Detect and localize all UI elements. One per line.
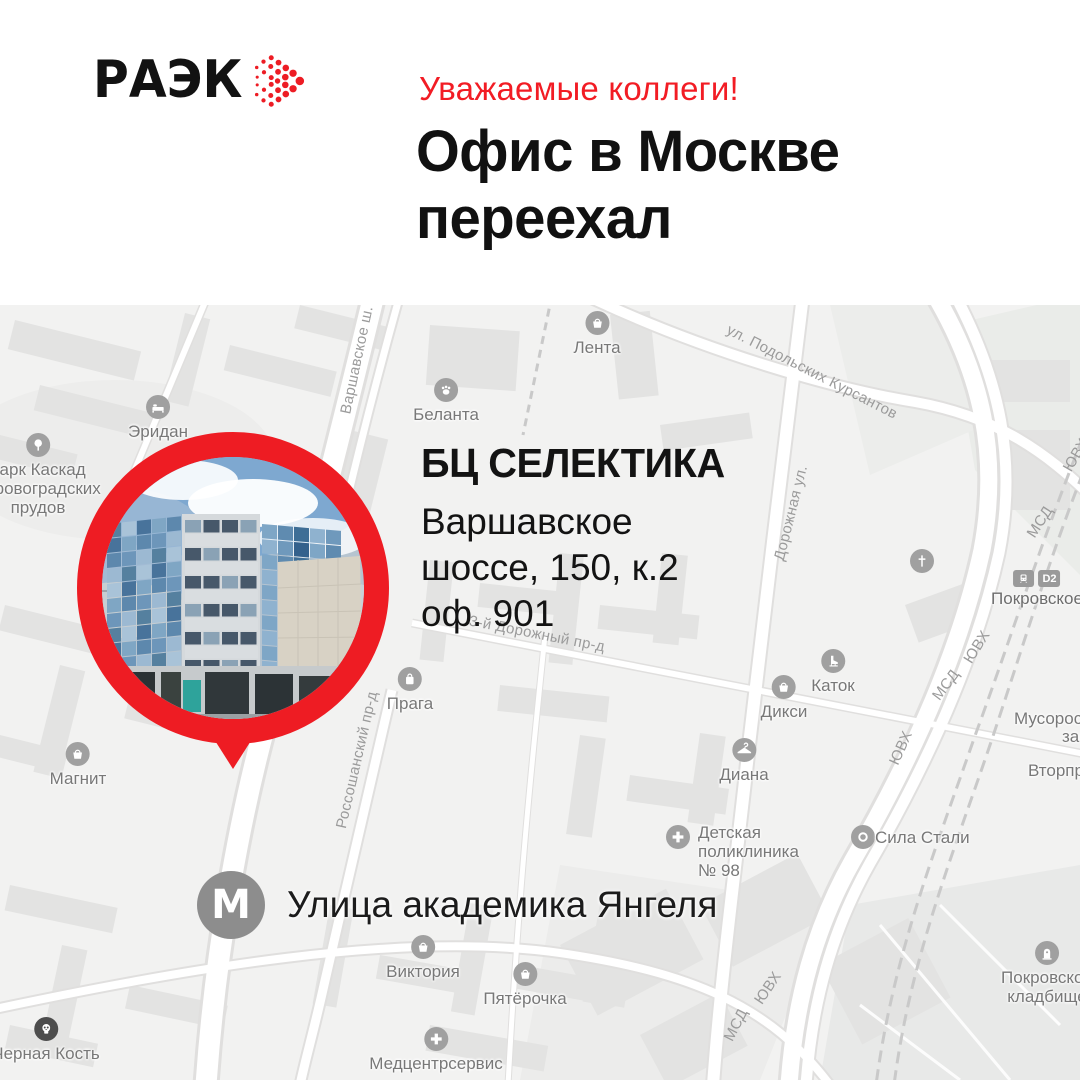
raec-logo: РАЭК bbox=[93, 48, 310, 112]
basket-icon bbox=[513, 962, 537, 986]
map-poi-label: Беланта bbox=[413, 405, 479, 424]
tomb-icon bbox=[1035, 941, 1059, 965]
basket-icon bbox=[772, 675, 796, 699]
map-poi-diksi: Дикси bbox=[761, 675, 808, 721]
page-title: Офис в Москве переехал bbox=[416, 118, 839, 252]
cross-icon bbox=[910, 549, 934, 573]
map-poi-label: Мусоросжигательный bbox=[1014, 709, 1080, 728]
metro-station-name: Улица академика Янгеля bbox=[287, 884, 717, 926]
map-poi-medcentrservis: Медцентрсервис bbox=[369, 1027, 502, 1073]
map-poi-label: Дикси bbox=[761, 702, 808, 721]
map-poi-label: Медцентрсервис bbox=[369, 1054, 502, 1073]
map-poi-katok: Каток bbox=[811, 649, 854, 695]
station-pokrovskoe: D2 Покровское bbox=[991, 570, 1080, 609]
map-poi-label: завод bbox=[1062, 727, 1080, 746]
address-line-3: оф. 901 bbox=[421, 591, 734, 637]
map-poi-musoro-line2: завод bbox=[1062, 727, 1080, 746]
station-name: Покровское bbox=[991, 589, 1080, 609]
basket-icon bbox=[585, 311, 609, 335]
paw-icon bbox=[434, 378, 458, 402]
raec-arrow-icon bbox=[248, 50, 310, 112]
map-poi-pokrovskoe-kladbishche: Покровскоекладбище bbox=[1001, 941, 1080, 1006]
map-poi-diana: Диана bbox=[719, 738, 768, 784]
skull-icon bbox=[34, 1017, 58, 1041]
map-poi-label: Пятёрочка bbox=[483, 989, 566, 1008]
address-callout: БЦ СЕЛЕКТИКА Варшавское шоссе, 150, к.2 … bbox=[421, 440, 734, 637]
map-poi-label: Диана bbox=[719, 765, 768, 784]
map-poi-pyaterochka: Пятёрочка bbox=[483, 962, 566, 1008]
map-poi-label: Сила Стали bbox=[875, 828, 970, 847]
tree-icon bbox=[26, 433, 50, 457]
building-name: БЦ СЕЛЕКТИКА bbox=[421, 440, 725, 487]
d2-line-badge: D2 bbox=[1038, 570, 1060, 587]
location-pin bbox=[63, 428, 403, 788]
map-poi-label: Виктория bbox=[386, 962, 460, 981]
map-poi-label: Черная Кость bbox=[0, 1044, 100, 1063]
map-poi-viktoriya: Виктория bbox=[386, 935, 460, 981]
skate-icon bbox=[821, 649, 845, 673]
train-badge-icon bbox=[1013, 570, 1034, 587]
raec-logo-text: РАЭК bbox=[93, 50, 242, 110]
bed-icon bbox=[146, 395, 170, 419]
map-poi-chernaya-kost: Черная Кость bbox=[0, 1017, 100, 1063]
med-icon bbox=[424, 1027, 448, 1051]
hanger-icon bbox=[732, 738, 756, 762]
address-line-1: Варшавское bbox=[421, 499, 734, 545]
map-poi-sila-stali: Сила Стали bbox=[843, 825, 970, 849]
med-icon bbox=[666, 825, 690, 849]
ring-icon bbox=[851, 825, 875, 849]
page-title-line2: переехал bbox=[416, 185, 839, 252]
map-poi-church bbox=[910, 549, 934, 573]
map-poi-label: Каток bbox=[811, 676, 854, 695]
header: РАЭК Уважаемые коллеги! Офис в Москве пе… bbox=[0, 0, 1080, 305]
greeting-text: Уважаемые коллеги! bbox=[419, 70, 739, 108]
map-poi-musoro-line1: Мусоросжигательный bbox=[1014, 709, 1080, 728]
metro-icon: М bbox=[197, 871, 265, 939]
map-poi-belanta: Беланта bbox=[413, 378, 479, 424]
page-title-line1: Офис в Москве bbox=[416, 118, 839, 185]
map-poi-label: Вторпром bbox=[1028, 761, 1080, 780]
map-poi-lenta: Лента bbox=[573, 311, 620, 357]
map-poi-label: Лента bbox=[573, 338, 620, 357]
map-poi-label: Покровскоекладбище bbox=[1001, 968, 1080, 1006]
map-poi-vtorprom: Вторпром bbox=[1028, 761, 1080, 780]
address-line-2: шоссе, 150, к.2 bbox=[421, 545, 734, 591]
metro-row: М Улица академика Янгеля bbox=[197, 871, 717, 939]
